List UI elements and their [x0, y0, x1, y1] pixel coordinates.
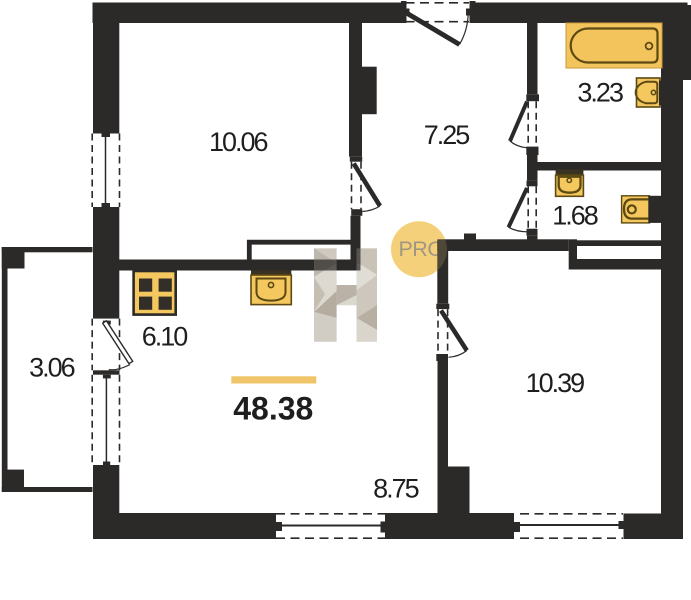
- svg-text:8.75: 8.75: [373, 474, 419, 504]
- svg-text:10.39: 10.39: [526, 368, 585, 398]
- svg-text:48.38: 48.38: [233, 391, 313, 427]
- svg-text:3.23: 3.23: [577, 78, 623, 108]
- svg-text:10.06: 10.06: [209, 127, 268, 157]
- svg-text:7.25: 7.25: [424, 120, 470, 150]
- svg-text:3.06: 3.06: [29, 353, 75, 383]
- svg-text:6.10: 6.10: [142, 321, 188, 351]
- svg-text:1.68: 1.68: [552, 201, 598, 231]
